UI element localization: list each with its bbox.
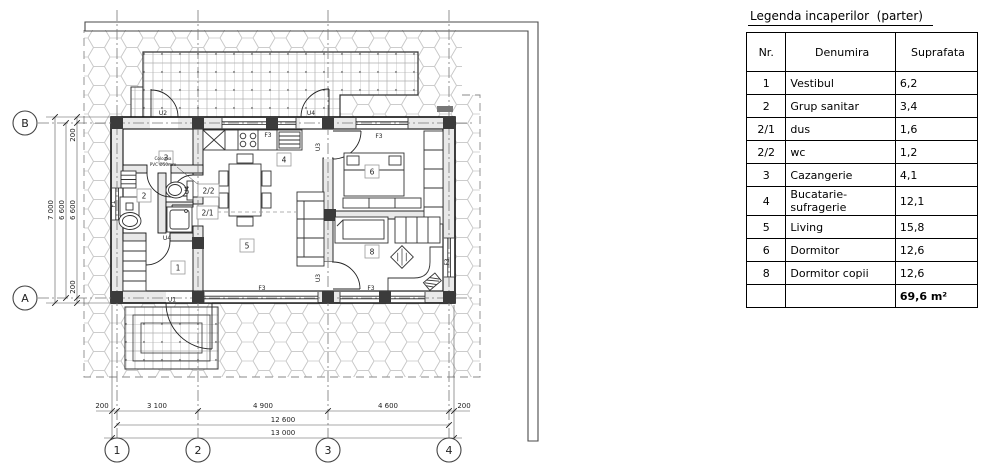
room-tag-8: 8 [370,248,375,257]
row-name: Cazangerie [786,164,895,187]
legend-row: 2 Grup sanitar 3,4 [747,95,978,118]
label-u4-vestibule: U4 [163,235,171,242]
label-f3-kidsroom: F3 [367,285,374,292]
label-f3-right: F3 [444,258,451,265]
row-name: Vestibul [786,72,895,95]
radiator [121,171,136,188]
legend-row: 5 Living 15,8 [747,216,978,239]
legend-row: 2/1 dus 1,6 [747,118,978,141]
dim-7000: 7 000 [47,200,55,220]
legend-header-nr: Nr. [747,33,786,72]
entrance-porch [125,307,218,369]
label-u3-bedroom: U3 [315,143,322,151]
kitchen-counter [203,130,302,150]
grid-bubble-4: 4 [446,444,453,457]
row-area: 15,8 [895,216,977,239]
row-name: wc [786,141,895,164]
note-line-1: Coloana [155,156,172,161]
dim-4600: 4 600 [378,402,398,410]
row-name: Dormitor copii [786,262,895,285]
legend-header-area: Suprafata [895,33,977,72]
label-u2: U2 [159,110,167,117]
washbasin [119,213,141,230]
grid-bubble-2: 2 [195,444,202,457]
room-tag-5: 5 [245,242,250,251]
label-u4-bath: U4 [184,186,191,194]
grid-bubble-B: B [21,117,29,130]
legend-header-row: Nr. Denumira Suprafata [747,33,978,72]
legend-row: 3 Cazangerie 4,1 [747,164,978,187]
legend-total: 69,6 m² [895,285,977,308]
row-area: 12,1 [895,187,977,216]
legend-row: 1 Vestibul 6,2 [747,72,978,95]
row-area: 1,2 [895,141,977,164]
legend-row: 2/2 wc 1,2 [747,141,978,164]
dim-3100: 3 100 [147,402,167,410]
row-area: 1,6 [895,118,977,141]
label-f3-living: F3 [258,285,265,292]
label-u3-kidsroom: U3 [315,274,322,282]
screenshot-root: 3 2 2/2 2/1 4 5 1 6 8 U2 U4 U1 U4 U4 U3 … [0,0,986,469]
dim-200-right: 200 [457,402,470,410]
label-f3-kitchen: F3 [264,132,271,139]
room-tag-4: 4 [282,156,287,165]
room-tag-2: 2 [142,192,147,201]
room-tag-22: 2/2 [202,187,214,196]
dim-200-bottom: 200 [69,280,77,293]
legend-total-row: 69,6 m² [747,285,978,308]
note-line-2: PVC Ø50mm [150,162,176,167]
label-f3-bedroom: F3 [375,133,382,140]
row-name: Bucatarie-sufragerie [786,187,895,216]
dim-200-left: 200 [95,402,108,410]
row-nr: 5 [747,216,786,239]
label-u1: U1 [168,297,176,304]
row-name: Dormitor [786,239,895,262]
dim-6600: 6 600 [69,200,77,220]
row-area: 6,2 [895,72,977,95]
row-area: 12,6 [895,262,977,285]
row-nr: 1 [747,72,786,95]
dim-200-top: 200 [69,128,77,141]
legend-table: Nr. Denumira Suprafata 1 Vestibul 6,2 2 … [746,32,978,308]
row-nr: 3 [747,164,786,187]
grid-bubble-1: 1 [114,444,121,457]
dim-4900: 4 900 [253,402,273,410]
row-nr: 2/1 [747,118,786,141]
room-tag-1: 1 [176,264,181,273]
row-nr: 2 [747,95,786,118]
dim-6600-axis: 6 600 [58,200,66,220]
row-area: 12,6 [895,239,977,262]
row-nr: 6 [747,239,786,262]
legend-header-name: Denumira [786,33,895,72]
row-name: Grup sanitar [786,95,895,118]
shower-tray [167,207,192,232]
wardrobe-bedroom [424,131,443,224]
row-nr: 4 [747,187,786,216]
row-nr: 8 [747,262,786,285]
total-empty-name [786,285,895,308]
legend-title: Legenda incaperilor (parter) [748,9,933,26]
total-empty-nr [747,285,786,308]
room-tag-21: 2/1 [201,209,213,218]
sill-mark [437,106,453,112]
row-name: dus [786,118,895,141]
grid-bubble-A: A [21,292,29,305]
row-nr: 2/2 [747,141,786,164]
wardrobe-kidsroom [395,217,440,243]
room-legend: Legenda incaperilor (parter) Nr. Denumir… [746,5,978,308]
row-name: Living [786,216,895,239]
grid-bubble-3: 3 [325,444,332,457]
legend-row: 4 Bucatarie-sufragerie 12,1 [747,187,978,216]
sofa [297,192,324,266]
floor-plan: 3 2 2/2 2/1 4 5 1 6 8 U2 U4 U1 U4 U4 U3 … [0,0,560,469]
vestibule-cabinet [123,241,146,291]
label-u4-top: U4 [307,110,315,117]
legend-row: 8 Dormitor copii 12,6 [747,262,978,285]
label-f1: F1 [110,200,117,207]
dim-12600: 12 600 [271,416,296,424]
legend-row: 6 Dormitor 12,6 [747,239,978,262]
room-tag-6: 6 [370,168,375,177]
row-area: 3,4 [895,95,977,118]
dim-13000: 13 000 [271,429,296,437]
row-area: 4,1 [895,164,977,187]
bed-kidsroom [335,217,388,243]
